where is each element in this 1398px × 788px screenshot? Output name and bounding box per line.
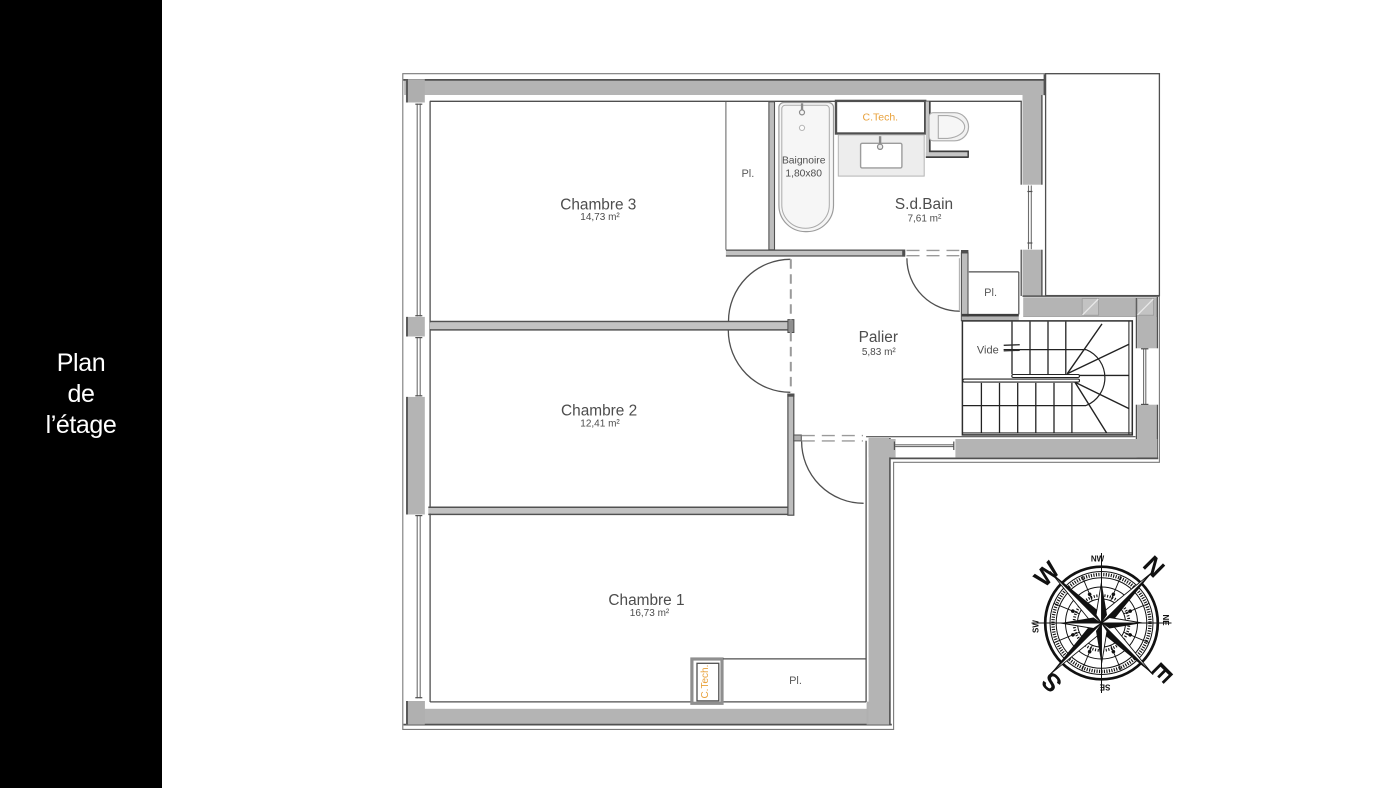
svg-text:C.Tech.: C.Tech. <box>862 111 898 123</box>
svg-text:SW: SW <box>1032 620 1041 633</box>
svg-text:Chambre 2: Chambre 2 <box>561 403 637 420</box>
svg-text:7,61 m²: 7,61 m² <box>907 213 942 224</box>
svg-text:14,73 m²: 14,73 m² <box>580 212 620 223</box>
svg-text:NE: NE <box>1161 614 1170 626</box>
svg-text:N: N <box>1137 551 1170 584</box>
svg-text:Chambre 3: Chambre 3 <box>560 197 636 214</box>
svg-text:Palier: Palier <box>859 329 898 346</box>
svg-text:E: E <box>1146 657 1178 689</box>
svg-text:W: W <box>1029 556 1066 593</box>
svg-text:Pl.: Pl. <box>741 168 754 180</box>
svg-text:Pl.: Pl. <box>789 675 802 687</box>
svg-text:1,80x80: 1,80x80 <box>785 169 822 180</box>
svg-text:NW: NW <box>1091 555 1105 564</box>
svg-text:S.d.Bain: S.d.Bain <box>895 196 953 213</box>
svg-text:Vide: Vide <box>977 345 999 357</box>
svg-text:12,41 m²: 12,41 m² <box>580 419 620 430</box>
svg-text:16,73 m²: 16,73 m² <box>630 608 670 619</box>
svg-text:Chambre 1: Chambre 1 <box>608 592 684 609</box>
svg-text:C.Tech.: C.Tech. <box>700 665 711 699</box>
svg-text:S: S <box>1036 666 1068 698</box>
svg-text:Pl.: Pl. <box>984 287 997 299</box>
svg-text:5,83 m²: 5,83 m² <box>862 347 897 358</box>
svg-text:Baignoire: Baignoire <box>782 156 826 167</box>
svg-text:SE: SE <box>1099 683 1110 692</box>
